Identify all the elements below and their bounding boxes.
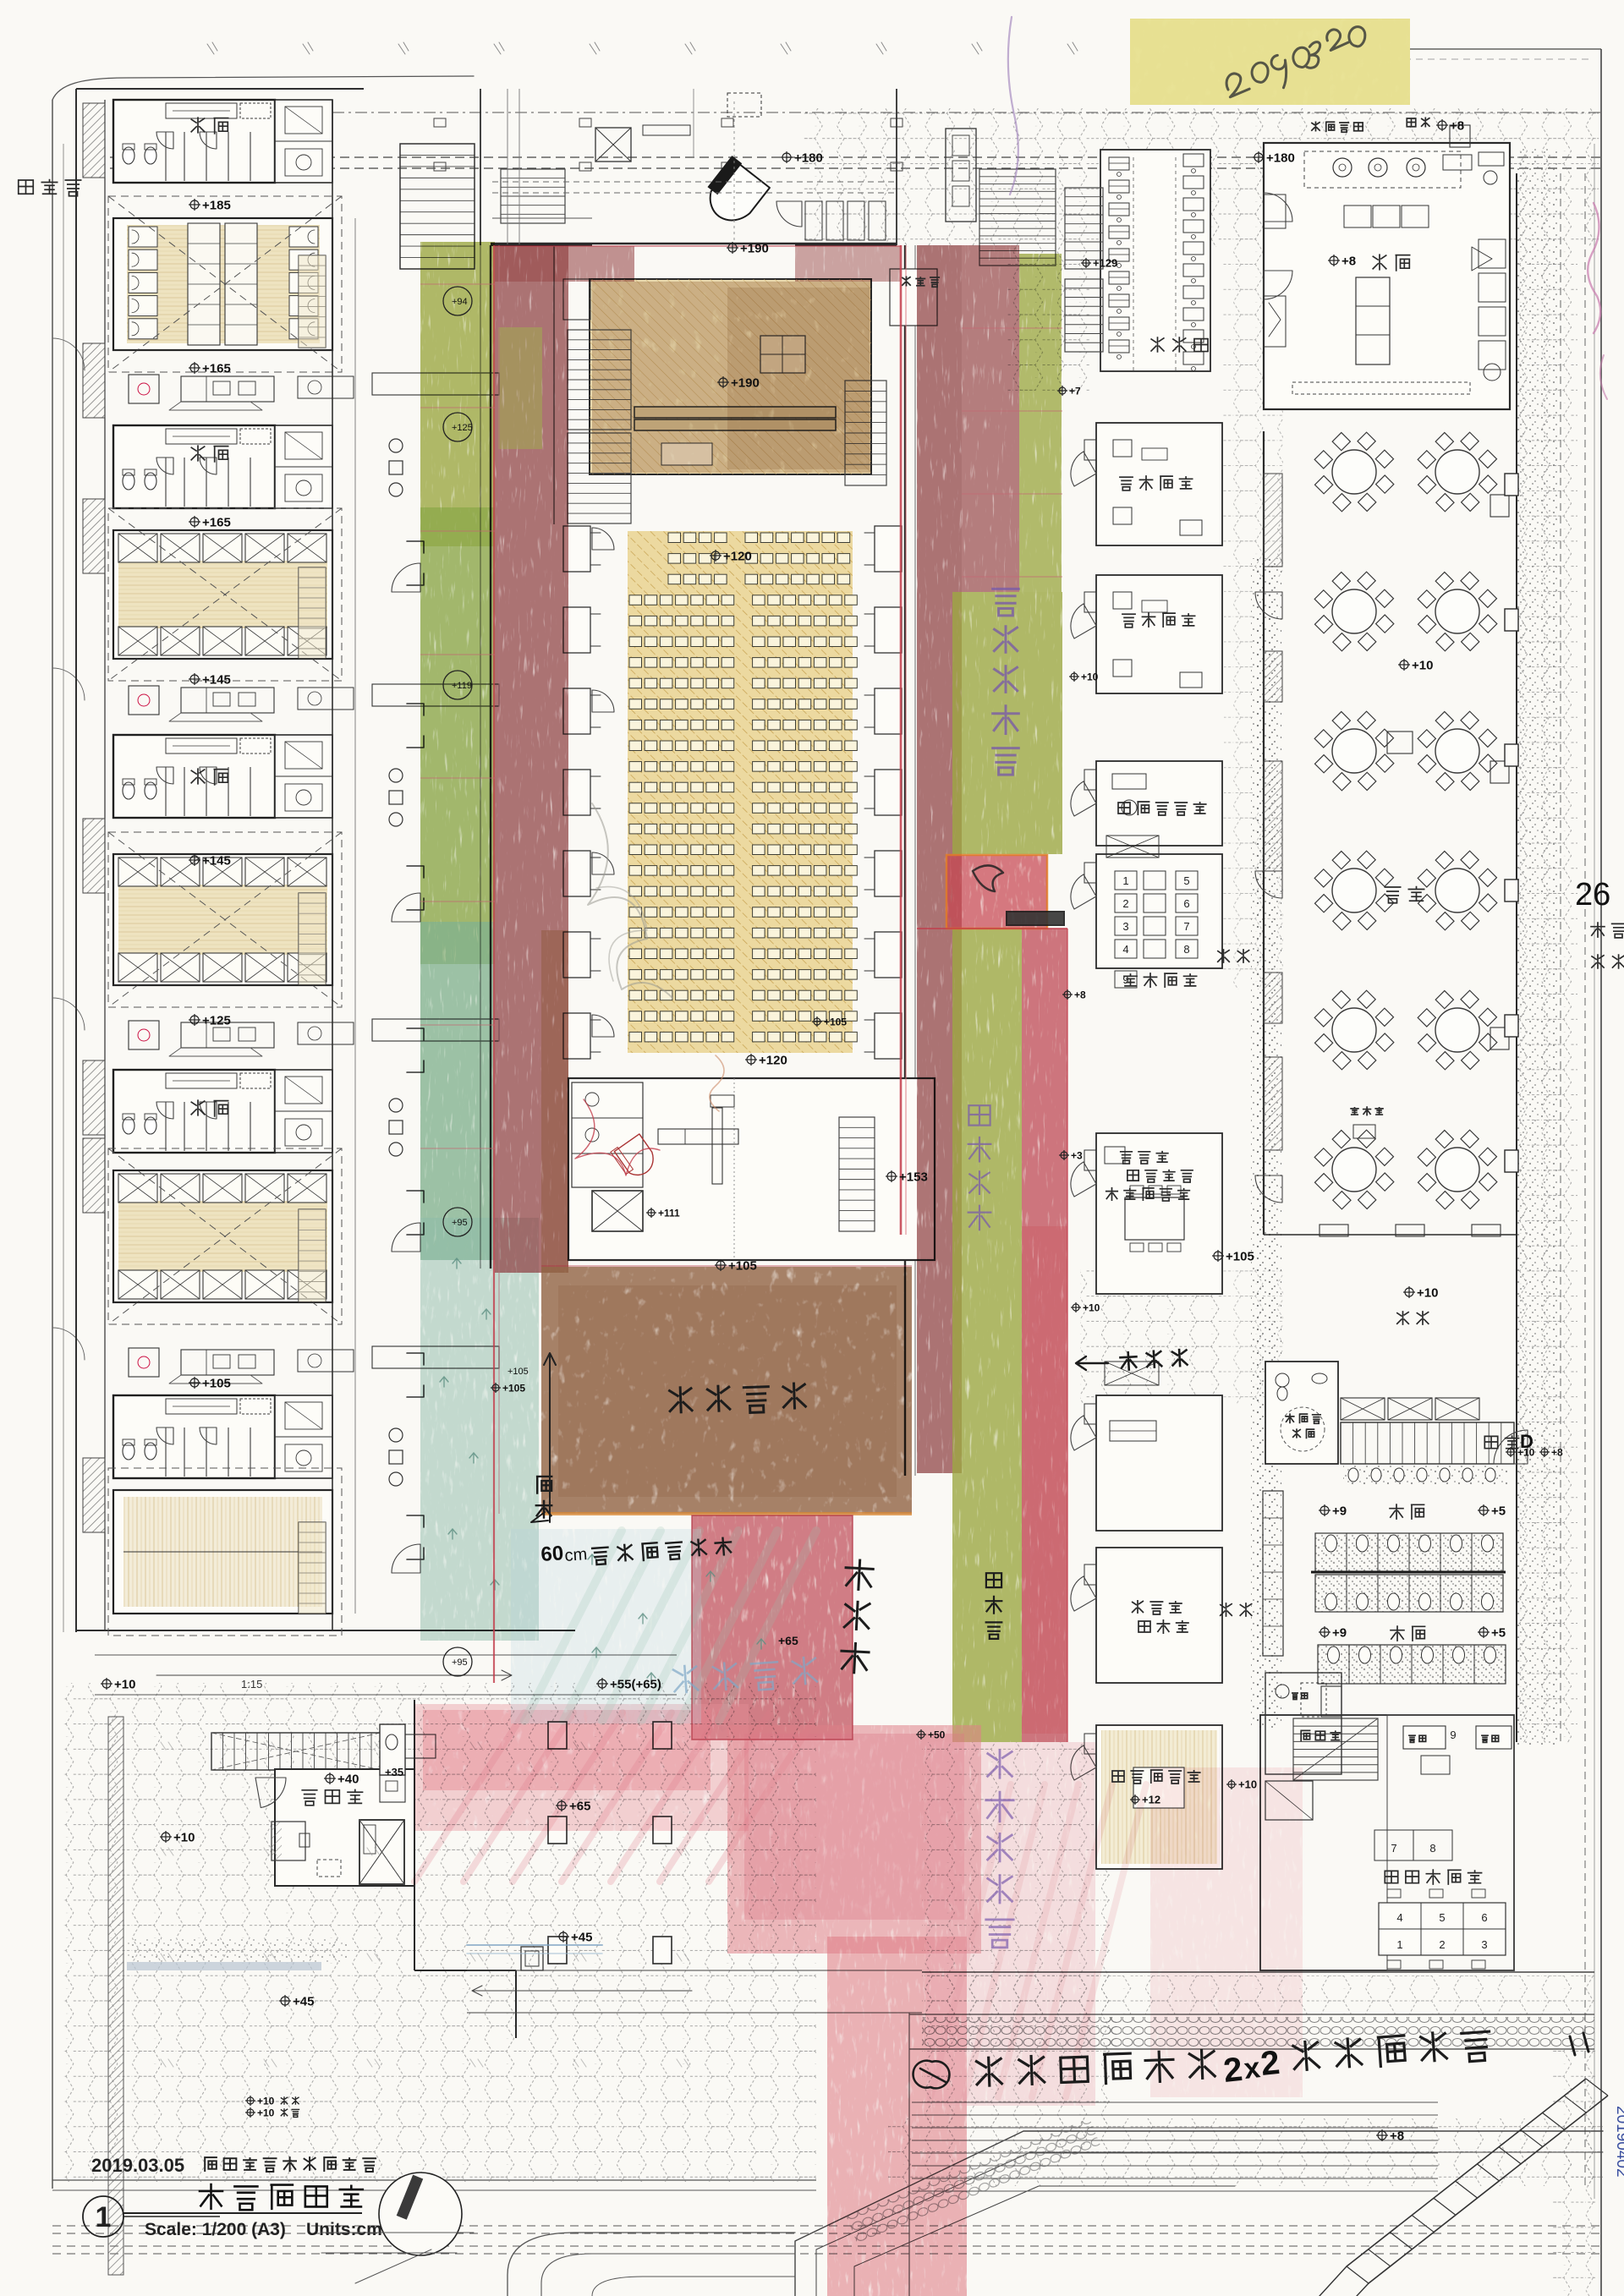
svg-text:+105: +105 — [1226, 1249, 1254, 1263]
svg-text:9: 9 — [1122, 973, 1128, 986]
svg-text:20190402: 20190402 — [1613, 2106, 1624, 2178]
svg-text:+10: +10 — [1238, 1778, 1257, 1791]
svg-text:8: 8 — [1429, 1842, 1435, 1855]
svg-text:+10: +10 — [1081, 671, 1099, 682]
svg-text:+145: +145 — [202, 672, 231, 687]
svg-text:+165: +165 — [202, 361, 231, 375]
svg-text:+12: +12 — [1142, 1794, 1160, 1806]
svg-text:1: 1 — [1122, 874, 1128, 887]
svg-text:+50: +50 — [928, 1729, 946, 1740]
svg-text:+5: +5 — [1491, 1504, 1506, 1518]
svg-text:60: 60 — [540, 1542, 565, 1566]
svg-text:+9: +9 — [1332, 1504, 1347, 1518]
svg-text:+105: +105 — [824, 1016, 847, 1027]
svg-text:2: 2 — [1221, 2051, 1244, 2090]
svg-text:+10: +10 — [1417, 1285, 1438, 1300]
svg-text:+10: +10 — [1083, 1301, 1100, 1313]
svg-text:+8: +8 — [1450, 118, 1464, 133]
svg-text:+40: +40 — [337, 1772, 359, 1786]
svg-text:+153: +153 — [899, 1170, 928, 1184]
svg-text:+105: +105 — [728, 1258, 757, 1273]
svg-text:+10: +10 — [257, 2095, 275, 2107]
svg-text:+45: +45 — [293, 1994, 314, 2008]
svg-text:6: 6 — [1183, 897, 1189, 910]
svg-text:+5: +5 — [1491, 1625, 1506, 1640]
svg-text:2: 2 — [1122, 897, 1128, 910]
svg-text:+8: +8 — [1390, 2129, 1404, 2143]
svg-text:+125: +125 — [202, 1013, 231, 1027]
svg-text:+10: +10 — [114, 1677, 135, 1691]
svg-text:+10: +10 — [1412, 658, 1433, 672]
svg-text:+190: +190 — [731, 375, 760, 390]
svg-text:2: 2 — [1259, 2044, 1281, 2083]
svg-text:+35: +35 — [385, 1766, 403, 1778]
svg-text:9: 9 — [1450, 1729, 1456, 1741]
svg-text:+180: +180 — [794, 151, 823, 165]
svg-text:cm: cm — [564, 1545, 588, 1565]
svg-text:4: 4 — [1122, 943, 1128, 956]
svg-text:+45: +45 — [571, 1930, 592, 1944]
svg-text:+120: +120 — [759, 1053, 787, 1067]
svg-text:1: 1 — [96, 2201, 112, 2233]
svg-text:3: 3 — [1122, 920, 1128, 933]
svg-text:4: 4 — [1396, 1911, 1402, 1924]
svg-text:x: x — [1243, 2052, 1262, 2085]
svg-text:+3: +3 — [1071, 1149, 1083, 1161]
svg-text:+190: +190 — [740, 241, 769, 255]
svg-text:6: 6 — [1481, 1911, 1487, 1924]
svg-text:+180: +180 — [1266, 151, 1295, 165]
svg-text:+8: +8 — [1551, 1446, 1563, 1458]
svg-text:+10: +10 — [257, 2107, 275, 2118]
svg-text:8: 8 — [1183, 943, 1189, 956]
svg-text:+165: +165 — [202, 515, 231, 529]
svg-text:2: 2 — [1439, 1938, 1445, 1951]
svg-text:+119: +119 — [452, 681, 472, 691]
svg-text:+105: +105 — [202, 1376, 231, 1390]
svg-text:+7: +7 — [1069, 385, 1081, 397]
svg-text:7: 7 — [1183, 920, 1189, 933]
svg-text:2019.03.05: 2019.03.05 — [91, 2155, 184, 2176]
svg-text:7: 7 — [1391, 1842, 1396, 1855]
svg-text:+95: +95 — [452, 1658, 468, 1668]
svg-text:+95: +95 — [452, 1218, 468, 1228]
svg-text:1:15: 1:15 — [241, 1678, 262, 1690]
svg-text:+10: +10 — [173, 1830, 195, 1844]
svg-text:+94: +94 — [452, 297, 468, 307]
svg-text:+129: +129 — [1093, 257, 1117, 270]
svg-text:+55(+65): +55(+65) — [610, 1677, 661, 1691]
svg-text:+65: +65 — [569, 1799, 590, 1813]
svg-text:+8: +8 — [1074, 989, 1086, 1000]
svg-text:+125: +125 — [452, 423, 473, 433]
svg-text:+65: +65 — [778, 1634, 798, 1647]
svg-text:5: 5 — [1183, 874, 1189, 887]
svg-text:+145: +145 — [202, 853, 231, 868]
svg-text:Units:cm: Units:cm — [306, 2220, 382, 2239]
svg-text:+185: +185 — [202, 198, 231, 212]
svg-text:D: D — [1520, 1431, 1533, 1452]
svg-text:1: 1 — [1396, 1938, 1402, 1951]
svg-text:+120: +120 — [723, 549, 752, 563]
svg-text:+111: +111 — [658, 1207, 680, 1219]
svg-text:+105: +105 — [502, 1382, 525, 1394]
svg-text:5: 5 — [1439, 1911, 1445, 1924]
svg-text:+8: +8 — [1341, 254, 1356, 268]
svg-text:Scale: 1/200 (A3): Scale: 1/200 (A3) — [145, 2220, 286, 2239]
svg-text:+9: +9 — [1332, 1625, 1347, 1640]
svg-text:26: 26 — [1575, 877, 1610, 912]
svg-text:3: 3 — [1481, 1938, 1487, 1951]
svg-text:+105: +105 — [507, 1367, 529, 1377]
